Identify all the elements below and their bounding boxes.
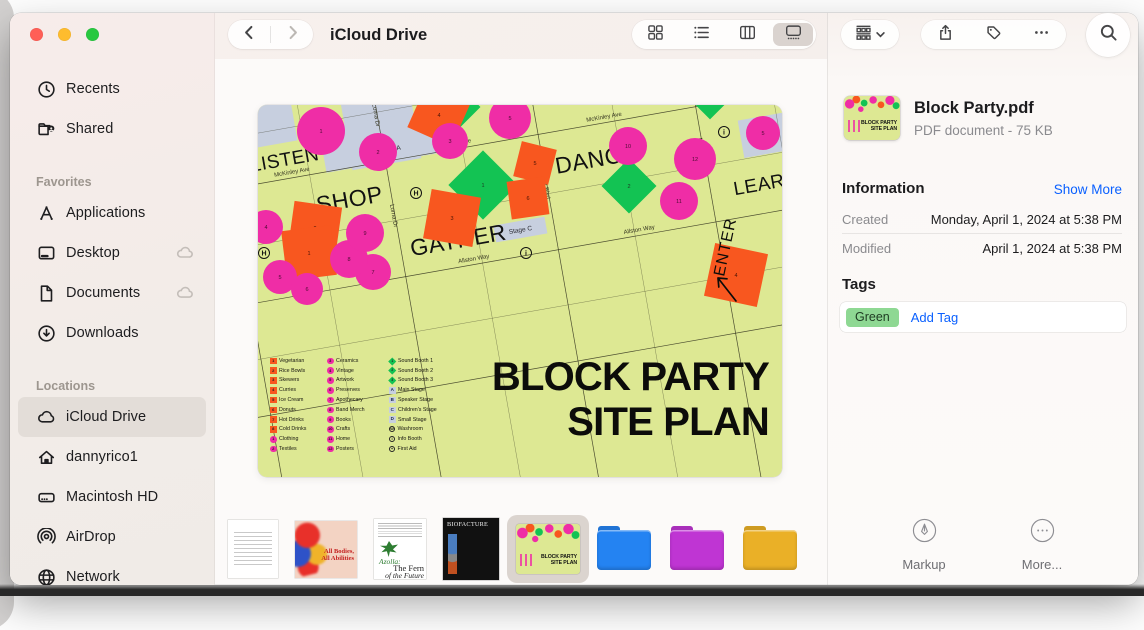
sidebar-item-label: Recents xyxy=(66,81,120,97)
sidebar-item-icon xyxy=(35,202,57,224)
finder-window: Recents Shared Favorites Applications xyxy=(10,13,1138,585)
sidebar-item-icon xyxy=(35,78,57,100)
add-tag-link[interactable]: Add Tag xyxy=(911,310,958,325)
svg-text:i: i xyxy=(525,251,527,258)
sidebar-item-label: Downloads xyxy=(66,325,139,341)
sidebar: Recents Shared Favorites Applications xyxy=(10,13,215,585)
quick-action-button[interactable]: More... xyxy=(1002,518,1082,572)
cloud-badge-icon xyxy=(174,282,196,304)
sidebar-section: Locations iCloud Drive dannyrico1 xyxy=(10,353,214,585)
sidebar-item-label: dannyrico1 xyxy=(66,449,138,465)
svg-text:10: 10 xyxy=(625,144,631,150)
legend-item: 7Apothecary xyxy=(327,395,384,405)
filmstrip-item[interactable] xyxy=(670,526,726,572)
sidebar-item-icon xyxy=(35,526,57,548)
toolbar-action-button[interactable] xyxy=(921,20,969,49)
legend-item: CChildren's Stage xyxy=(389,405,453,415)
legend-item: 1Sound Booth 1 xyxy=(389,356,453,366)
file-name: Block Party.pdf xyxy=(914,99,1034,118)
legend-item: 8Cold Drinks xyxy=(270,425,322,435)
back-button[interactable] xyxy=(228,20,270,49)
filmstrip-item[interactable]: All Bodies, All Abilities xyxy=(295,521,357,578)
group-button[interactable] xyxy=(841,20,899,49)
info-row: Modified April 1, 2024 at 5:38 PM xyxy=(842,234,1122,263)
svg-text:3: 3 xyxy=(450,216,453,222)
legend-item: 8Band Merch xyxy=(327,405,384,415)
legend-column: 1Vegetarian2Rice Bowls3Skewers4Curries5I… xyxy=(270,356,322,454)
svg-text:i: i xyxy=(723,130,725,137)
traffic-lights xyxy=(30,28,99,41)
legend-item: 6Donuts xyxy=(270,405,322,415)
svg-text:4: 4 xyxy=(264,225,267,231)
sidebar-section-title: Favorites xyxy=(10,149,214,193)
sidebar-item-icon xyxy=(35,242,57,264)
legend-item: 3Ceramics xyxy=(327,356,384,366)
toolbar-action-button[interactable] xyxy=(1017,20,1065,49)
legend-item: 3Skewers xyxy=(270,376,322,386)
zoom-button[interactable] xyxy=(86,28,99,41)
nav-buttons xyxy=(228,20,313,49)
legend-item: 7Hot Drinks xyxy=(270,415,322,425)
legend-item: iInfo Booth xyxy=(389,434,453,444)
file-meta: PDF document - 75 KB xyxy=(914,123,1053,138)
legend-item: 1Vegetarian xyxy=(270,356,322,366)
quick-action-button[interactable]: Markup xyxy=(884,518,964,572)
svg-text:3: 3 xyxy=(448,139,451,145)
svg-text:6: 6 xyxy=(526,196,529,202)
sidebar-item[interactable]: AirDrop xyxy=(18,517,206,557)
svg-text:4: 4 xyxy=(734,273,737,279)
folder-icon xyxy=(743,526,799,572)
sidebar-item-label: Network xyxy=(66,569,120,585)
svg-text:5: 5 xyxy=(761,131,764,137)
legend-item: BSpeaker Stage xyxy=(389,395,453,405)
window-title: iCloud Drive xyxy=(330,26,427,45)
sidebar-item-label: Documents xyxy=(66,285,140,301)
svg-text:5: 5 xyxy=(508,116,511,122)
svg-text:7: 7 xyxy=(371,270,374,276)
svg-text:6: 6 xyxy=(305,287,308,293)
legend-item: 5Ice Cream xyxy=(270,395,322,405)
sidebar-item-label: Desktop xyxy=(66,245,120,261)
svg-text:H: H xyxy=(413,191,418,198)
map-legend: 1Vegetarian2Rice Bowls3Skewers4Curries5I… xyxy=(270,356,453,454)
legend-item: WWashroom xyxy=(389,425,453,435)
sidebar-item-label: Applications xyxy=(66,205,145,221)
toolbar-actions xyxy=(921,20,1066,49)
sidebar-item-icon xyxy=(35,406,57,428)
view-button[interactable] xyxy=(632,20,678,49)
svg-text:11: 11 xyxy=(676,199,682,205)
legend-item: +First Aid xyxy=(389,444,453,454)
sidebar-item[interactable]: Documents xyxy=(18,273,206,313)
tags-heading: Tags xyxy=(842,276,876,293)
svg-text:2: 2 xyxy=(376,150,379,156)
forward-button[interactable] xyxy=(271,20,313,49)
sidebar-item-icon xyxy=(35,282,57,304)
sidebar-item-label: iCloud Drive xyxy=(66,409,146,425)
file-thumbnail[interactable]: BLOCK PARTYSITE PLAN xyxy=(844,96,900,140)
legend-item: AMain Stage xyxy=(389,385,453,395)
filmstrip-item[interactable]: BIOFACTURE xyxy=(443,518,499,580)
legend-item: 10Crafts xyxy=(327,425,384,435)
legend-item: 3Sound Booth 3 xyxy=(389,376,453,386)
svg-text:2: 2 xyxy=(627,184,630,190)
info-rows: Created Monday, April 1, 2024 at 5:38 PM… xyxy=(842,205,1122,263)
toolbar-action-button[interactable] xyxy=(969,20,1017,49)
search-button[interactable] xyxy=(1086,13,1130,57)
sidebar-item-label: Shared xyxy=(66,121,113,137)
legend-item: 4Curries xyxy=(270,385,322,395)
legend-column: 1Sound Booth 12Sound Booth 23Sound Booth… xyxy=(389,356,453,454)
site-plan-preview[interactable]: Stage AStage CStage DMcKinley AveMcKinle… xyxy=(258,105,782,477)
filmstrip-item[interactable]: Azolla: The Fern of the Future xyxy=(374,519,426,579)
legend-item: 6Preserves xyxy=(327,385,384,395)
filmstrip-item[interactable] xyxy=(743,526,799,572)
filmstrip: All Bodies, All Abilities Azolla: The Fe… xyxy=(215,507,827,585)
close-button[interactable] xyxy=(30,28,43,41)
sidebar-item[interactable]: Macintosh HD xyxy=(18,477,206,517)
sidebar-section-title: Locations xyxy=(10,353,214,397)
svg-text:8: 8 xyxy=(347,257,350,263)
legend-item: 12Posters xyxy=(327,444,384,454)
sidebar-item-icon xyxy=(35,566,57,585)
sidebar-item[interactable]: iCloud Drive xyxy=(18,397,206,437)
svg-text:1: 1 xyxy=(307,251,310,257)
sidebar-section: Favorites Applications Desktop xyxy=(10,149,214,353)
legend-column: 3Ceramics4Vintage5Artwork6Preserves7Apot… xyxy=(327,356,384,454)
filmstrip-item[interactable] xyxy=(597,526,653,572)
preview-pane: BLOCK PARTYSITE PLAN Block Party.pdf PDF… xyxy=(827,13,1138,585)
svg-text:12: 12 xyxy=(692,157,698,163)
minimize-button[interactable] xyxy=(58,28,71,41)
sidebar-item-icon xyxy=(35,486,57,508)
sidebar-item-label: AirDrop xyxy=(66,529,116,545)
info-row: Created Monday, April 1, 2024 at 5:38 PM xyxy=(842,205,1122,234)
legend-item: DSmall Stage xyxy=(389,415,453,425)
legend-item: 4Vintage xyxy=(327,366,384,376)
sidebar-item[interactable]: Desktop xyxy=(18,233,206,273)
legend-item: 2Textiles xyxy=(270,444,322,454)
view-button[interactable] xyxy=(770,20,816,49)
sidebar-item-icon xyxy=(35,446,57,468)
tag-green[interactable]: Green xyxy=(846,308,899,327)
sidebar-item-icon xyxy=(35,322,57,344)
sidebar-item[interactable]: Network xyxy=(18,557,206,585)
legend-item: 11Home xyxy=(327,434,384,444)
folder-icon xyxy=(670,526,726,572)
svg-text:H: H xyxy=(261,251,266,258)
sidebar-item-label: Macintosh HD xyxy=(66,489,158,505)
sidebar-item[interactable]: dannyrico1 xyxy=(18,437,206,477)
sidebar-item[interactable]: Shared xyxy=(18,109,206,149)
svg-text:5: 5 xyxy=(278,275,281,281)
sidebar-item[interactable]: Downloads xyxy=(18,313,206,353)
show-more-link[interactable]: Show More xyxy=(1054,182,1122,197)
filmstrip-item[interactable]: BLOCK PARTYSITE PLAN xyxy=(516,524,580,574)
sidebar-item[interactable]: Applications xyxy=(18,193,206,233)
view-button[interactable] xyxy=(724,20,770,49)
gallery-view: Stage AStage CStage DMcKinley AveMcKinle… xyxy=(215,59,827,585)
filmstrip-item[interactable] xyxy=(228,520,278,578)
svg-text:9: 9 xyxy=(363,231,366,237)
legend-item: 9Books xyxy=(327,415,384,425)
legend-item: 5Artwork xyxy=(327,376,384,386)
sidebar-item-icon xyxy=(35,118,57,140)
cloud-badge-icon xyxy=(174,242,196,264)
svg-text:4: 4 xyxy=(437,113,440,119)
legend-item: 2Sound Booth 2 xyxy=(389,366,453,376)
sidebar-item[interactable]: Recents xyxy=(18,69,206,109)
legend-item: 1Clothing xyxy=(270,434,322,444)
view-switcher xyxy=(632,20,816,49)
quick-actions: Markup More... xyxy=(828,518,1138,572)
folder-icon xyxy=(597,526,653,572)
view-button[interactable] xyxy=(678,20,724,49)
svg-text:5: 5 xyxy=(533,161,536,167)
legend-item: 2Rice Bowls xyxy=(270,366,322,376)
window-shadow xyxy=(0,584,1144,596)
svg-text:1: 1 xyxy=(481,183,484,189)
tags-field[interactable]: Green Add Tag xyxy=(840,302,1126,332)
map-title: BLOCK PARTY SITE PLAN xyxy=(492,355,769,445)
information-heading: Information xyxy=(842,180,925,197)
svg-text:1: 1 xyxy=(319,129,322,135)
